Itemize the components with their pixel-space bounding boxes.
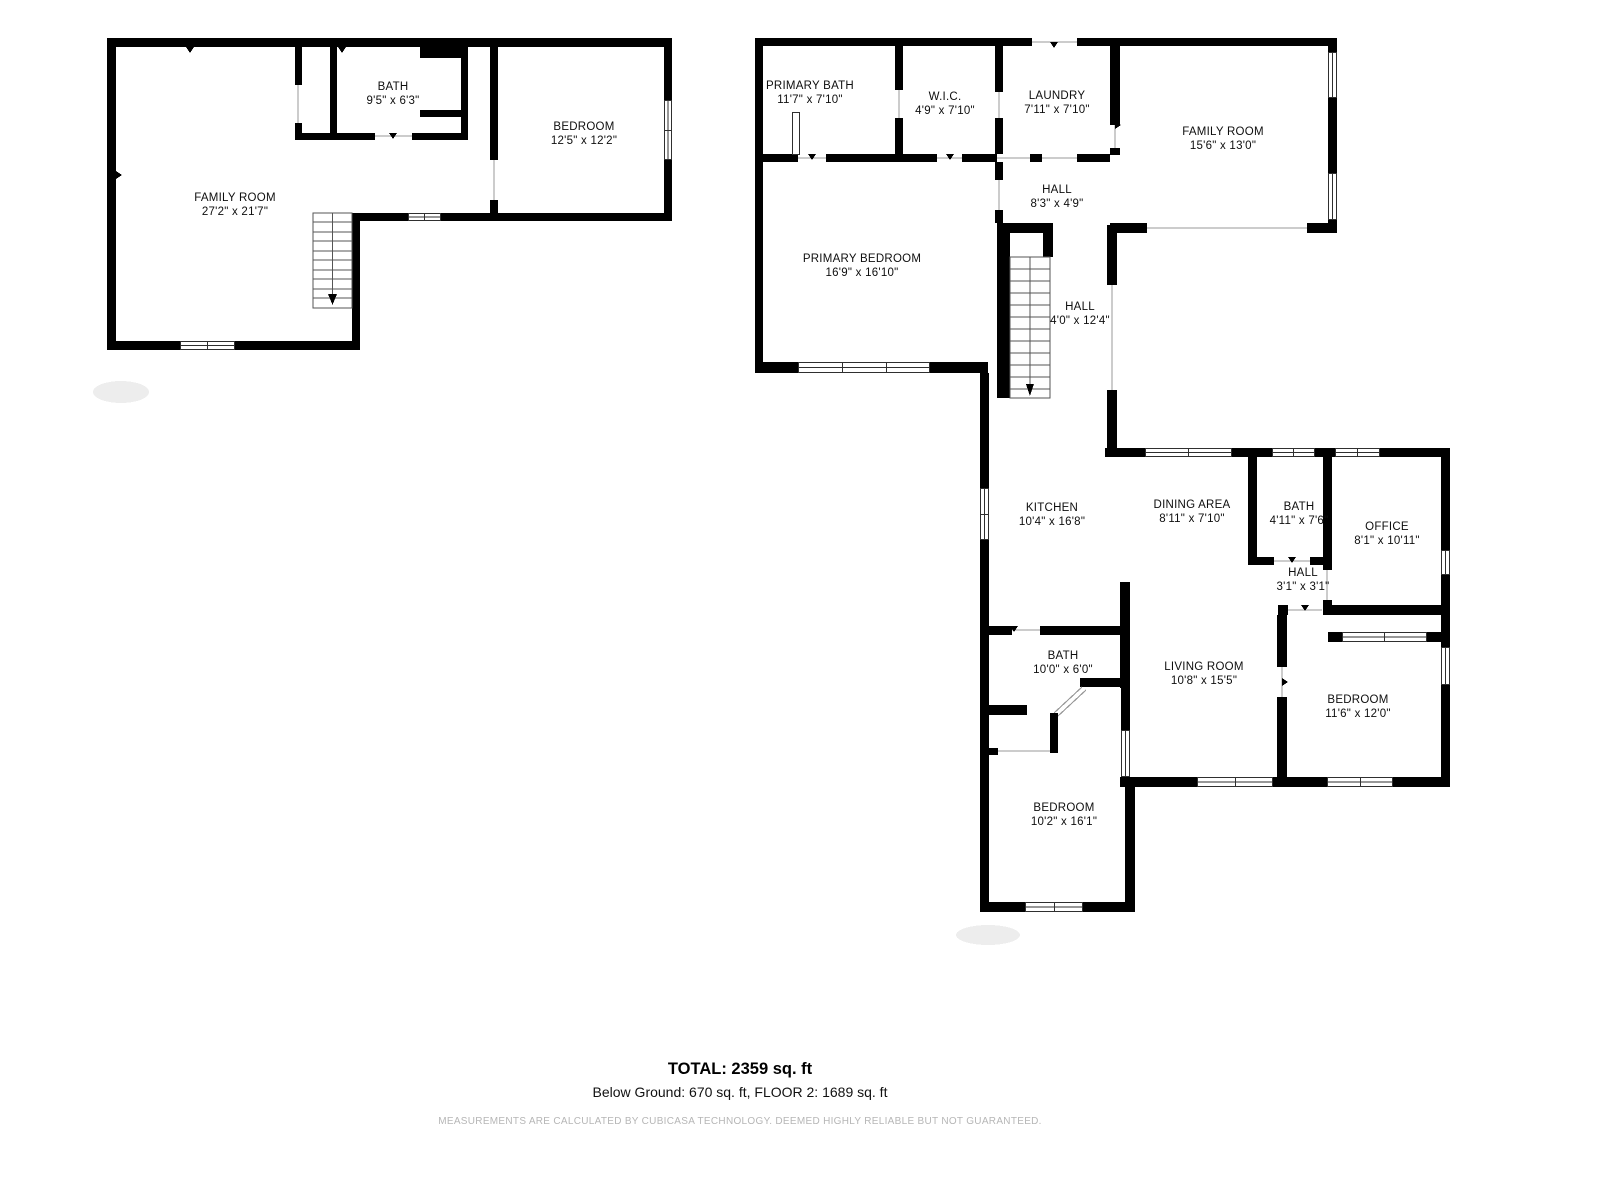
window — [1329, 52, 1337, 98]
window — [665, 100, 672, 160]
window — [1197, 778, 1273, 787]
room-label-primary-bedroom: PRIMARY BEDROOM 16'9" x 16'10" — [803, 252, 921, 280]
room-name: LAUNDRY — [1024, 89, 1089, 103]
window — [1025, 903, 1083, 912]
room-dims: 8'1" x 10'11" — [1354, 534, 1419, 548]
room-name: FAMILY ROOM — [194, 191, 276, 205]
stairs-down-arrow — [1026, 384, 1034, 396]
room-dims: 9'5" x 6'3" — [366, 94, 419, 108]
room-name: HALL — [1050, 300, 1110, 314]
room-name: DINING AREA — [1154, 498, 1231, 512]
window — [1329, 173, 1337, 220]
window — [1327, 778, 1393, 787]
disclaimer-text: MEASUREMENTS ARE CALCULATED BY CUBICASA … — [0, 1116, 1480, 1127]
window — [180, 342, 235, 350]
room-name: BATH — [1270, 500, 1329, 514]
room-dims: 4'0" x 12'4" — [1050, 314, 1110, 328]
window — [1335, 449, 1380, 457]
room-label-office: OFFICE 8'1" x 10'11" — [1354, 520, 1419, 548]
watermark-right — [956, 925, 1020, 945]
room-name: PRIMARY BATH — [766, 79, 854, 93]
window — [1442, 647, 1450, 685]
door-leaf — [793, 113, 800, 155]
room-name: KITCHEN — [1019, 501, 1085, 515]
room-label-bedroom-south: BEDROOM 10'2" x 16'1" — [1031, 801, 1097, 829]
room-name: HALL — [1276, 566, 1329, 580]
room-label-bedroom-below-ground: BEDROOM 12'5" x 12'2" — [551, 120, 617, 148]
room-dims: 27'2" x 21'7" — [194, 205, 276, 219]
room-label-hall-upper: HALL 8'3" x 4'9" — [1030, 183, 1083, 211]
room-label-wic: W.I.C. 4'9" x 7'10" — [915, 90, 975, 118]
room-dims: 7'11" x 7'10" — [1024, 103, 1089, 117]
room-label-kitchen: KITCHEN 10'4" x 16'8" — [1019, 501, 1085, 529]
room-name: BEDROOM — [551, 120, 617, 134]
room-dims: 11'6" x 12'0" — [1325, 707, 1390, 721]
room-label-bath-small: BATH 4'11" x 7'6" — [1270, 500, 1329, 528]
window — [1145, 449, 1232, 457]
room-dims: 8'3" x 4'9" — [1030, 197, 1083, 211]
total-area-text: TOTAL: 2359 sq. ft — [0, 1060, 1480, 1079]
room-name: BEDROOM — [1031, 801, 1097, 815]
stairs-below-ground — [313, 213, 352, 308]
room-name: HALL — [1030, 183, 1083, 197]
room-name: W.I.C. — [915, 90, 975, 104]
room-label-primary-bath: PRIMARY BATH 11'7" x 7'10" — [766, 79, 854, 107]
window — [1272, 449, 1315, 457]
room-dims: 4'9" x 7'10" — [915, 104, 975, 118]
window — [1342, 633, 1427, 642]
summary-footer: TOTAL: 2359 sq. ft Below Ground: 670 sq.… — [0, 1060, 1480, 1127]
room-label-hall-stairs: HALL 4'0" x 12'4" — [1050, 300, 1110, 328]
stairs-down-arrow — [328, 294, 337, 305]
room-label-family-room-below-ground: FAMILY ROOM 27'2" x 21'7" — [194, 191, 276, 219]
room-label-bath-below-ground: BATH 9'5" x 6'3" — [366, 80, 419, 108]
window — [408, 214, 441, 221]
room-dims: 11'7" x 7'10" — [766, 93, 854, 107]
room-label-hall-tiny: HALL 3'1" x 3'1" — [1276, 566, 1329, 594]
room-name: BATH — [366, 80, 419, 94]
room-label-laundry: LAUNDRY 7'11" x 7'10" — [1024, 89, 1089, 117]
room-name: BEDROOM — [1325, 693, 1390, 707]
room-dims: 10'0" x 6'0" — [1033, 663, 1093, 677]
watermark-left — [93, 381, 149, 403]
room-dims: 4'11" x 7'6" — [1270, 514, 1329, 528]
room-label-bath-main: BATH 10'0" x 6'0" — [1033, 649, 1093, 677]
room-label-living-room: LIVING ROOM 10'8" x 15'5" — [1164, 660, 1243, 688]
room-name: LIVING ROOM — [1164, 660, 1243, 674]
room-name: OFFICE — [1354, 520, 1419, 534]
window — [981, 488, 989, 540]
floorplan-canvas — [0, 0, 1600, 1199]
room-dims: 10'2" x 16'1" — [1031, 815, 1097, 829]
window — [798, 363, 930, 373]
stairs-floor2 — [1010, 257, 1050, 398]
room-dims: 15'6" x 13'0" — [1182, 139, 1264, 153]
room-dims: 3'1" x 3'1" — [1276, 580, 1329, 594]
room-label-dining-area: DINING AREA 8'11" x 7'10" — [1154, 498, 1231, 526]
window — [1122, 730, 1130, 777]
room-name: BATH — [1033, 649, 1093, 663]
room-name: PRIMARY BEDROOM — [803, 252, 921, 266]
room-dims: 8'11" x 7'10" — [1154, 512, 1231, 526]
room-label-bedroom-east: BEDROOM 11'6" x 12'0" — [1325, 693, 1390, 721]
room-name: FAMILY ROOM — [1182, 125, 1264, 139]
floor2-floorplan — [755, 38, 1450, 912]
room-dims: 10'4" x 16'8" — [1019, 515, 1085, 529]
room-label-family-room-floor2: FAMILY ROOM 15'6" x 13'0" — [1182, 125, 1264, 153]
room-dims: 16'9" x 16'10" — [803, 266, 921, 280]
room-dims: 10'8" x 15'5" — [1164, 674, 1243, 688]
room-dims: 12'5" x 12'2" — [551, 134, 617, 148]
floor-breakdown-text: Below Ground: 670 sq. ft, FLOOR 2: 1689 … — [0, 1084, 1480, 1100]
window — [1442, 550, 1450, 575]
